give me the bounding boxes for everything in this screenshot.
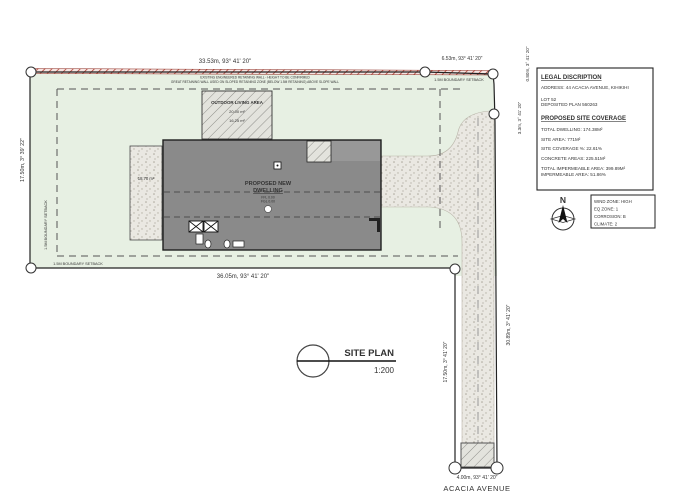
dim-top: 33.53m, 93° 41' 20" <box>199 59 251 65</box>
side-path-area-label: 18.70 m² <box>138 176 155 181</box>
dim-right-upper: 3.3m, 3° 41' 20" <box>517 101 522 134</box>
outdoor-living-area-gross: 20.00 m² <box>229 109 245 114</box>
legal-deposited-plan: DEPOSITED PLAN 560263 <box>541 102 598 107</box>
coverage-heading: PROPOSED SITE COVERAGE <box>541 116 626 122</box>
legal-heading: LEGAL DISCRIPTION <box>541 75 602 81</box>
dim-top-right: 6.53m, 93° 41' 20" <box>442 56 483 62</box>
coverage-impermeable: IMPERMEABLE AREA: 51.86% <box>541 172 606 177</box>
building-roof-section <box>331 141 380 161</box>
drawing-title: SITE PLAN <box>344 348 394 359</box>
dim-right-upper-short: 0.80m, 3° 41' 20" <box>525 46 530 81</box>
building-label-line1: PROPOSED NEW <box>245 181 292 187</box>
legal-address: ADDRESS: 44 ACACIA AVENUE, KIHIKIHI <box>541 85 629 90</box>
north-label: N <box>560 195 566 205</box>
outdoor-living-area <box>202 91 272 139</box>
coverage-site-area: SITE AREA: 771M² <box>541 137 581 142</box>
driveway-concrete <box>381 111 494 461</box>
climate-zone: CLIMATE: 2 <box>594 222 618 227</box>
side-path <box>130 146 162 240</box>
building-label-line2: DWELLING <box>253 188 283 194</box>
setback-label-bottom: 1.5M BOUNDARY SETBACK <box>53 262 103 266</box>
site-plan-page: 18.70 m² OUTDOOR LIVING AREA 20.00 m² 16… <box>0 0 700 500</box>
dim-access-left: 17.50m, 3° 41' 20" <box>443 341 449 382</box>
outdoor-living-label: OUTDOOR LIVING AREA <box>211 100 264 105</box>
coverage-site-coverage: SITE COVERAGE %: 22.61% <box>541 146 602 151</box>
legal-description-box: LEGAL DISCRIPTION ADDRESS: 44 ACACIA AVE… <box>537 68 653 190</box>
building-marker-dot <box>265 206 272 213</box>
eq-zone: EQ ZONE: 1 <box>594 207 619 212</box>
setback-label-left: 1.5M BOUNDARY SETBACK <box>44 200 48 250</box>
north-compass: N <box>551 195 575 230</box>
setback-label-top: 1.5M BOUNDARY SETBACK <box>434 78 484 82</box>
coverage-total-dwelling: TOTAL DWELLING: 174.38M² <box>541 127 603 132</box>
vehicle-crossing <box>461 443 494 467</box>
building-fgl-label: FGL 0.00 <box>261 200 275 204</box>
wind-zone: WIND ZONE: HIGH <box>594 199 632 204</box>
site-classification-box: WIND ZONE: HIGH EQ ZONE: 1 CORROSION: B … <box>591 195 655 228</box>
site-plan-drawing: 18.70 m² OUTDOOR LIVING AREA 20.00 m² 16… <box>0 0 700 500</box>
dim-access-bottom: 4.00m, 93° 41' 20" <box>457 475 498 481</box>
dim-left: 17.50m, 3° 39' 22" <box>20 138 26 182</box>
title-block: SITE PLAN 1:200 <box>297 345 396 377</box>
window-symbol <box>274 162 281 169</box>
dim-access-right: 30.89m, 3° 41' 20" <box>506 304 512 345</box>
dim-bottom-main: 36.05m, 93° 41' 20" <box>217 274 269 280</box>
drawing-scale: 1:200 <box>374 366 395 375</box>
building-steps <box>307 141 331 162</box>
retaining-wall-note-1: EXISTING ENGINEERED RETAINING WALL - HEI… <box>200 76 310 80</box>
street-name: ACACIA AVENUE <box>443 484 510 493</box>
retaining-wall-note-2: GREAT RETAINING WALL USED ON SLOPED RETA… <box>171 80 339 84</box>
outdoor-living-area-net: 16.25 m² <box>229 118 245 123</box>
coverage-concrete: CONCRETE AREAS: 225.51M² <box>541 156 606 161</box>
corrosion-zone: CORROSION: B <box>594 214 626 219</box>
coverage-total-impermeable: TOTAL IMPERMEABLE AREA: 399.89M² <box>541 166 626 171</box>
